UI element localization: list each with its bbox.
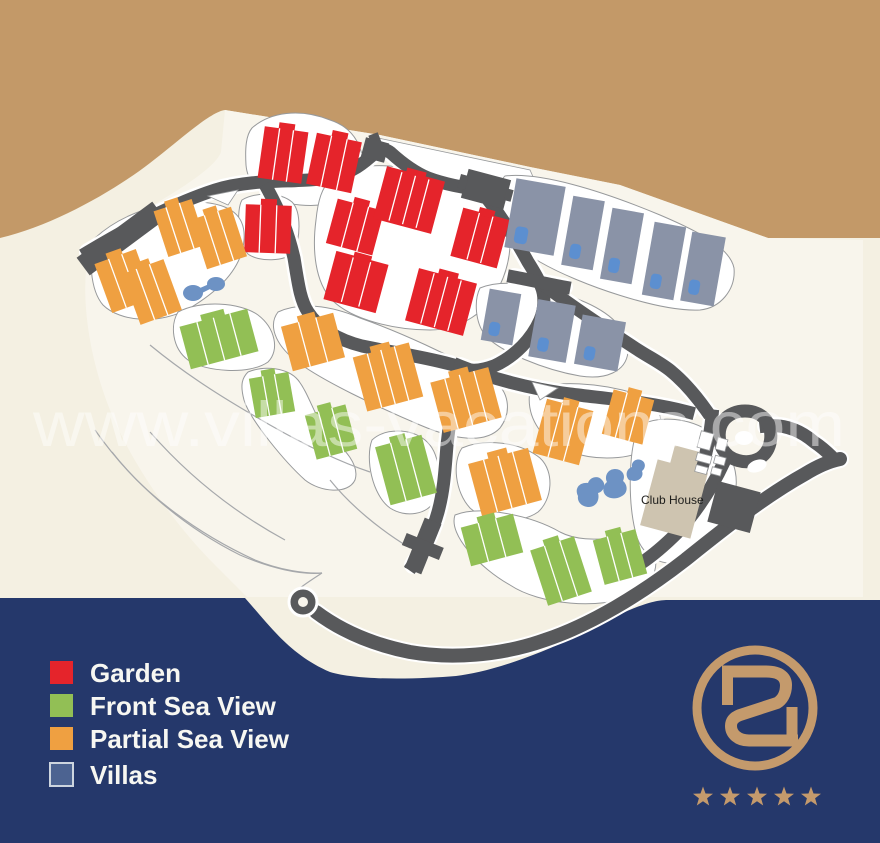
svg-text:Front Sea View: Front Sea View <box>90 691 277 721</box>
svg-text:Club House: Club House <box>641 493 704 507</box>
svg-text:www.villas-vacations.com: www.villas-vacations.com <box>32 390 845 460</box>
svg-text:Villas: Villas <box>90 760 157 790</box>
svg-text:Partial Sea View: Partial Sea View <box>90 724 290 754</box>
svg-text:Garden: Garden <box>90 658 181 688</box>
